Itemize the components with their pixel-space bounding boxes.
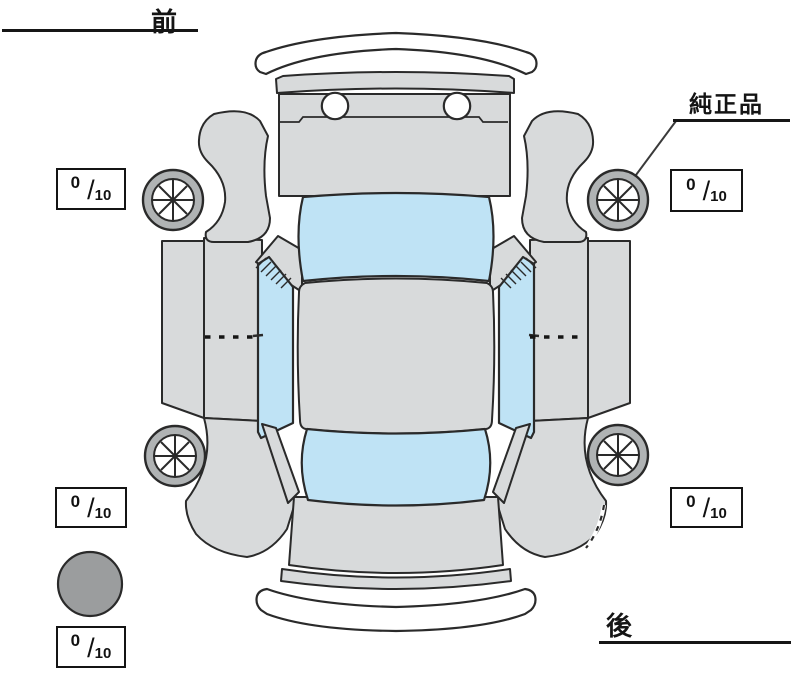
rear-bumper: [257, 589, 536, 631]
rocker-panel-right: [588, 241, 630, 418]
trunk-lid: [289, 497, 503, 573]
wheel-rear-left-icon: [145, 426, 205, 486]
fraction-slash: /: [87, 493, 95, 524]
front-label: 前: [151, 2, 177, 39]
tread-box-spare: 0 / 10: [56, 626, 126, 668]
front-bumper: [256, 33, 537, 74]
windshield: [299, 193, 494, 281]
side-glass-left: [258, 257, 293, 438]
car-top-view-drawing: [0, 0, 800, 675]
tread-out-of: 10: [710, 505, 727, 522]
rocker-panel-left: [162, 241, 204, 418]
front-underline: [2, 29, 198, 32]
wheel-front-left-icon: [143, 170, 203, 230]
genuine-part-label: 純正品: [689, 85, 764, 119]
tread-box-front-right: 0 / 10: [670, 169, 743, 212]
tread-box-front-left: 0 / 10: [56, 168, 126, 210]
tread-value: 0: [686, 492, 695, 512]
hood: [279, 94, 510, 196]
tread-value: 0: [71, 173, 80, 193]
tread-box-rear-right: 0 / 10: [670, 487, 743, 528]
rear-window: [302, 429, 491, 506]
tread-out-of: 10: [95, 187, 112, 204]
door-right: [530, 238, 588, 421]
spare-tire-circle-icon: [58, 552, 122, 616]
fender-front-right: [522, 111, 593, 242]
rear-underline: [599, 641, 791, 644]
tread-out-of: 10: [95, 645, 112, 662]
vehicle-condition-diagram: 前 純正品 後 0 / 10 0 / 10 0 / 10 0 / 10 0 / …: [0, 0, 800, 675]
tread-value: 0: [71, 631, 80, 651]
roof: [298, 279, 495, 434]
headlight-right: [444, 93, 470, 119]
wheel-rear-right-icon: [588, 425, 648, 485]
genuine-part-underline: [673, 119, 790, 122]
rear-label: 後: [606, 606, 632, 643]
wheel-front-right-icon: [588, 170, 648, 230]
fraction-slash: /: [703, 176, 711, 207]
headlight-left: [322, 93, 348, 119]
fraction-slash: /: [87, 175, 95, 206]
side-glass-right: [499, 257, 534, 438]
tread-value: 0: [686, 175, 695, 195]
front-grille-band: [276, 72, 514, 93]
tread-value: 0: [71, 492, 80, 512]
tread-out-of: 10: [95, 505, 112, 522]
fraction-slash: /: [703, 493, 711, 524]
door-left: [204, 238, 262, 421]
fender-front-left: [199, 111, 270, 242]
tread-box-rear-left: 0 / 10: [55, 487, 127, 528]
tread-out-of: 10: [710, 188, 727, 205]
fraction-slash: /: [87, 633, 95, 664]
